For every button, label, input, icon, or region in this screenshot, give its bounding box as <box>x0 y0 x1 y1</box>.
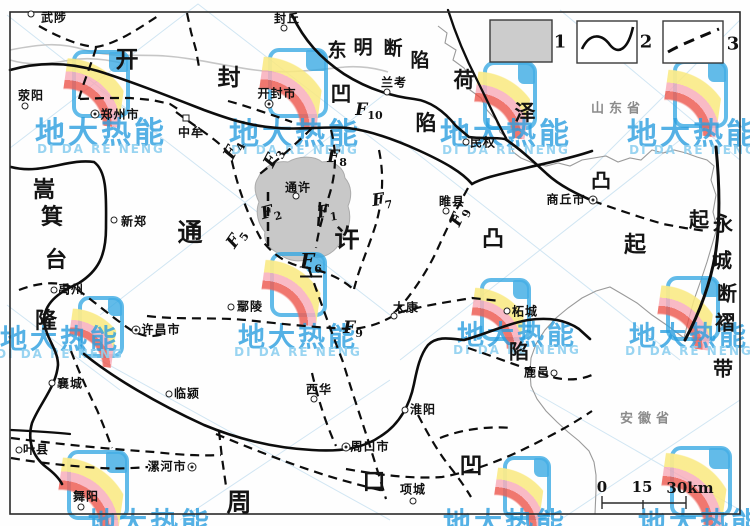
region-label-char-kaifeng-depression: 凹 <box>331 78 352 108</box>
city-marker <box>342 443 351 452</box>
region-label-char-zhoukou-depression: 口 <box>363 462 386 496</box>
city-label: 郑州市 <box>100 106 139 123</box>
fault-label-F8: F8 <box>327 147 347 169</box>
legend-item-number: 2 <box>640 32 653 53</box>
city-label: 封丘 <box>274 10 300 27</box>
city-marker <box>166 391 173 398</box>
legend-item-number: 3 <box>727 34 740 55</box>
region-label-char-dongming-fault-depression: 陷 <box>410 46 429 73</box>
region-label-char-kaifeng-depression: 封 <box>218 58 241 92</box>
city-label: 临颍 <box>174 385 200 402</box>
city-label: 叶县 <box>23 441 49 458</box>
region-label-char-heze-uplift: 泽 <box>515 97 536 127</box>
region-label-char-yongcheng-fault-fold-belt: 永 <box>713 208 733 237</box>
fault-label-F1: F1 <box>316 201 339 226</box>
city-marker <box>228 304 235 311</box>
region-label-char-yongcheng-fault-fold-belt: 城 <box>712 245 732 274</box>
region-label-char-yongcheng-fault-fold-belt: 带 <box>713 353 733 382</box>
city-label: 舞阳 <box>73 488 99 505</box>
city-marker <box>49 380 56 387</box>
region-label-char-zhoukou-depression: 陷 <box>509 336 529 365</box>
city-marker <box>78 504 85 511</box>
fault-label-F7: F7 <box>371 189 394 214</box>
city-marker <box>188 463 197 472</box>
region-label-char-heze-uplift: 起 <box>689 204 709 233</box>
region-label-char-zhoukou-depression: 周 <box>226 483 251 519</box>
city-label: 太康 <box>393 299 419 316</box>
city-label: 商丘市 <box>546 191 585 208</box>
region-label-char-zhoukou-depression: 凹 <box>460 446 483 480</box>
city-marker <box>111 217 118 224</box>
region-label-char-songji-platform-rise: 隆 <box>35 303 57 335</box>
fault-label-F9: F9 <box>343 318 363 340</box>
region-label-char-dongming-fault-depression: 断 <box>383 34 402 61</box>
city-label: 柘城 <box>512 303 538 320</box>
city-label: 漯河市 <box>147 458 186 475</box>
city-marker <box>551 370 558 377</box>
legend-item-number: 1 <box>554 32 567 53</box>
region-label-char-dongming-fault-depression: 东 <box>327 36 346 63</box>
city-label: 禹州 <box>58 281 84 298</box>
region-label-char-heze-uplift: 凸 <box>591 165 611 194</box>
city-label: 许昌市 <box>141 321 180 338</box>
region-label-char-kaifeng-depression: 陷 <box>416 107 437 137</box>
city-marker <box>51 287 58 294</box>
region-label-char-tongxu-uplift: 许 <box>334 219 359 255</box>
region-label-char-songji-platform-rise: 箕 <box>41 199 63 231</box>
region-label-char-dongming-fault-depression: 明 <box>353 33 372 60</box>
city-marker <box>402 407 409 414</box>
city-label: 中牟 <box>178 124 204 141</box>
city-marker <box>22 103 29 110</box>
region-label-char-songji-platform-rise: 台 <box>45 242 67 274</box>
region-label-char-tongxu-uplift: 凸 <box>482 221 504 253</box>
province-label: 山东省 <box>591 98 645 117</box>
fault-label-F4: F4 <box>219 136 248 164</box>
city-marker <box>589 196 598 205</box>
region-label-char-heze-uplift: 荷 <box>454 64 475 94</box>
city-label: 项城 <box>400 481 426 498</box>
city-marker <box>16 447 23 454</box>
city-label: 武陟 <box>41 9 67 26</box>
city-marker <box>504 308 511 315</box>
city-label: 鄢陵 <box>237 298 263 315</box>
scale-bar-label: 0 <box>597 478 607 496</box>
city-marker <box>91 110 100 119</box>
region-label-char-kaifeng-depression: 开 <box>116 40 139 74</box>
fault-label-F2: F2 <box>259 200 284 227</box>
fault-label-F6: F6 <box>300 249 322 278</box>
city-marker <box>410 498 417 505</box>
city-label: 兰考 <box>381 74 407 91</box>
province-label: 安徽省 <box>620 408 674 427</box>
city-marker <box>132 326 141 335</box>
city-marker <box>28 11 35 18</box>
city-label: 开封市 <box>257 85 296 102</box>
city-label: 鹿邑 <box>524 364 550 381</box>
region-label-char-tongxu-uplift: 起 <box>624 227 646 259</box>
city-label: 周口市 <box>350 438 389 455</box>
label-layer: 开封凹陷东明断陷荷泽凸起通许凸起嵩箕台隆永城断褶带周口凹陷山东省安徽省武陟封丘荥… <box>0 0 750 526</box>
city-label: 襄城 <box>57 375 83 392</box>
fault-label-F10: F10 <box>355 100 382 122</box>
scale-bar-label: 15 <box>632 478 653 496</box>
city-marker <box>183 115 190 122</box>
city-label: 民权 <box>470 134 496 151</box>
city-label: 荥阳 <box>18 87 44 104</box>
city-label: 西华 <box>306 381 332 398</box>
scale-bar-label: 30km <box>666 479 713 497</box>
city-label: 淮阳 <box>410 401 436 418</box>
city-marker <box>463 139 470 146</box>
region-label-char-yongcheng-fault-fold-belt: 断 <box>717 278 737 307</box>
city-label: 新郑 <box>121 213 147 230</box>
region-label-char-yongcheng-fault-fold-belt: 褶 <box>715 307 735 336</box>
city-label: 通许 <box>285 179 311 196</box>
fault-label-F3: F3 <box>259 144 288 172</box>
fault-label-F5: F5 <box>222 224 252 253</box>
region-label-char-tongxu-uplift: 通 <box>177 213 202 249</box>
geological-map: 地大热能DI DA RE NENG地大热能DI DA RE NENG地大热能DI… <box>0 0 750 526</box>
